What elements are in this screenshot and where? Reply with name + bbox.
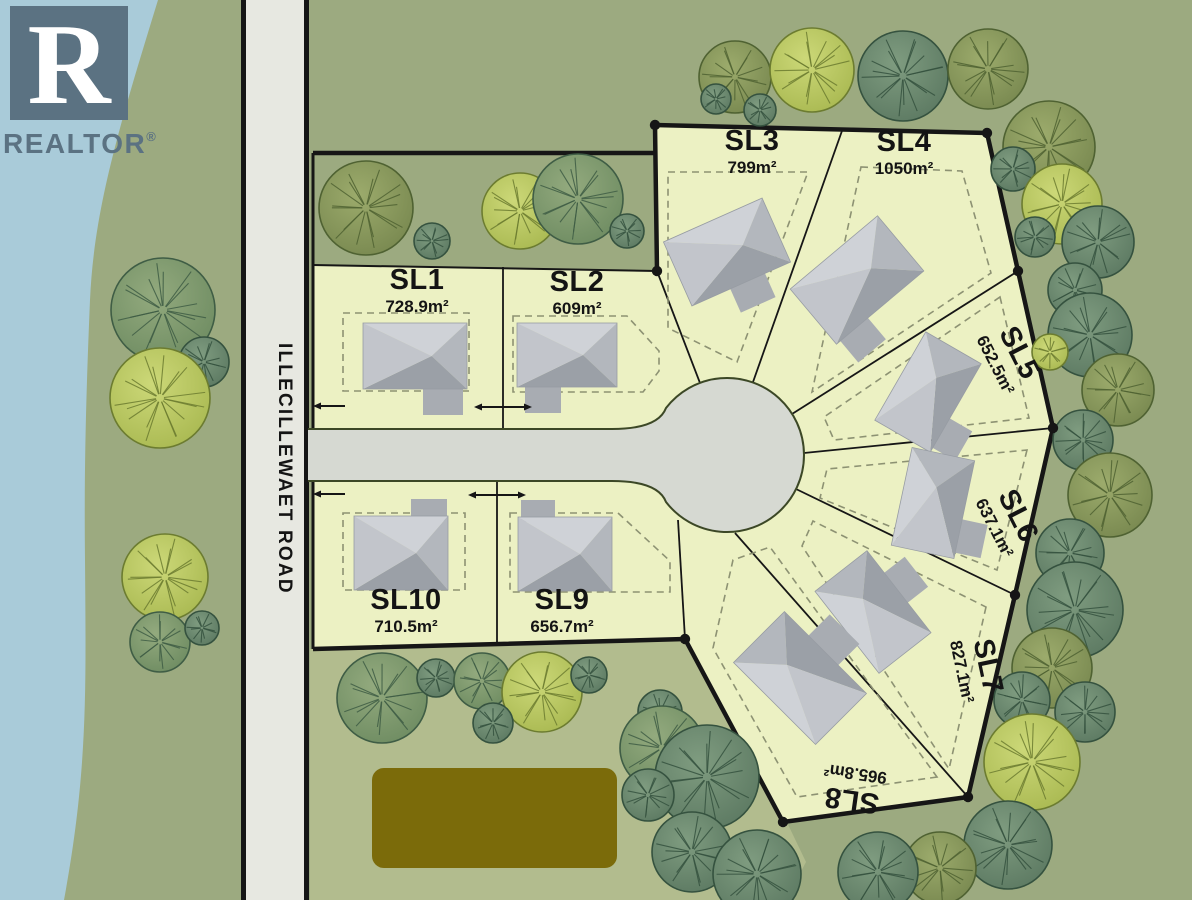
house-wing bbox=[423, 389, 463, 415]
tree-branch bbox=[417, 240, 431, 241]
lot-label-SL4: SL41050m² bbox=[875, 126, 934, 178]
boundary-corner-marker bbox=[1010, 590, 1020, 600]
boundary-corner-marker bbox=[680, 634, 690, 644]
tree bbox=[417, 659, 455, 697]
tree-canopy bbox=[858, 31, 948, 121]
realtor-logo-wordmark: REALTOR® bbox=[3, 128, 157, 159]
tree bbox=[610, 214, 644, 248]
tree bbox=[984, 714, 1080, 810]
tree-canopy bbox=[414, 223, 450, 259]
pond bbox=[372, 768, 617, 868]
tree-canopy bbox=[701, 84, 731, 114]
tree-canopy bbox=[984, 714, 1080, 810]
tree-branch bbox=[1050, 337, 1051, 350]
boundary-corner-marker bbox=[963, 792, 973, 802]
lot-id-text: SL2 bbox=[550, 266, 605, 298]
lot-label-SL8: SL8965.8m² bbox=[818, 760, 888, 820]
boundary-corner-marker bbox=[652, 266, 662, 276]
tree bbox=[744, 94, 776, 126]
tree bbox=[502, 652, 582, 732]
realtor-wordmark-text: REALTOR bbox=[3, 128, 146, 159]
tree-canopy bbox=[622, 769, 674, 821]
lot-id-text: SL1 bbox=[390, 264, 445, 296]
tree bbox=[655, 725, 759, 829]
lot-id-text: SL4 bbox=[877, 126, 932, 158]
tree bbox=[1015, 217, 1055, 257]
lot-label-SL10: SL10710.5m² bbox=[370, 584, 441, 636]
lot-label-SL2: SL2609m² bbox=[550, 266, 605, 318]
tree-canopy bbox=[502, 652, 582, 732]
tree-branch bbox=[878, 875, 879, 897]
tree-branch bbox=[493, 725, 494, 736]
boundary-corner-marker bbox=[1048, 423, 1058, 433]
tree bbox=[110, 348, 210, 448]
registered-mark: ® bbox=[146, 129, 157, 144]
tree bbox=[858, 31, 948, 121]
subdivision-plan-canvas: ILLECILLEWAET ROAD SL1728.9m²SL2609m²SL3… bbox=[0, 0, 1192, 900]
lot-id-text: SL3 bbox=[725, 125, 780, 157]
boundary-corner-marker bbox=[778, 817, 788, 827]
tree-canopy bbox=[417, 659, 455, 697]
tree-canopy bbox=[655, 725, 759, 829]
tree-canopy bbox=[1015, 217, 1055, 257]
lot-area-text: 656.7m² bbox=[530, 617, 594, 636]
tree-branch bbox=[484, 680, 502, 681]
tree bbox=[622, 769, 674, 821]
tree-branch bbox=[187, 627, 201, 628]
tree bbox=[454, 653, 510, 709]
tree-canopy bbox=[744, 94, 776, 126]
lot-id-text: SL9 bbox=[535, 584, 590, 616]
boundary-corner-marker bbox=[650, 120, 660, 130]
tree bbox=[414, 223, 450, 259]
house-wing bbox=[525, 387, 561, 413]
boundary-corner-marker bbox=[1013, 266, 1023, 276]
realtor-logo-letter: R bbox=[27, 1, 112, 128]
tree bbox=[319, 161, 413, 255]
lot-area-text: 1050m² bbox=[875, 159, 934, 178]
tree bbox=[185, 611, 219, 645]
pond-layer bbox=[372, 768, 617, 868]
tree-canopy bbox=[454, 653, 510, 709]
tree-branch bbox=[774, 70, 808, 71]
tree-canopy bbox=[964, 801, 1052, 889]
lot-id-text: SL10 bbox=[370, 584, 441, 616]
tree bbox=[473, 703, 513, 743]
tree bbox=[571, 657, 607, 693]
site-plan-map: ILLECILLEWAET ROAD SL1728.9m²SL2609m²SL3… bbox=[0, 0, 1192, 900]
tree-canopy bbox=[110, 348, 210, 448]
tree bbox=[948, 29, 1028, 109]
tree bbox=[122, 534, 208, 620]
lot-area-text: 799m² bbox=[727, 158, 776, 177]
lot-label-SL1: SL1728.9m² bbox=[385, 264, 449, 316]
tree bbox=[964, 801, 1052, 889]
tree bbox=[337, 653, 427, 743]
boundary-corner-marker bbox=[982, 128, 992, 138]
lot-label-SL3: SL3799m² bbox=[725, 125, 780, 177]
lot-area-text: 609m² bbox=[552, 299, 601, 318]
lot-area-text: 710.5m² bbox=[374, 617, 438, 636]
road-name-label: ILLECILLEWAET ROAD bbox=[274, 343, 295, 595]
tree bbox=[130, 612, 190, 672]
tree-canopy bbox=[948, 29, 1028, 109]
lot-label-SL9: SL9656.7m² bbox=[530, 584, 594, 636]
tree-branch bbox=[628, 230, 641, 231]
tree bbox=[701, 84, 731, 114]
lot-area-text: 728.9m² bbox=[385, 297, 449, 316]
tree bbox=[770, 28, 854, 112]
